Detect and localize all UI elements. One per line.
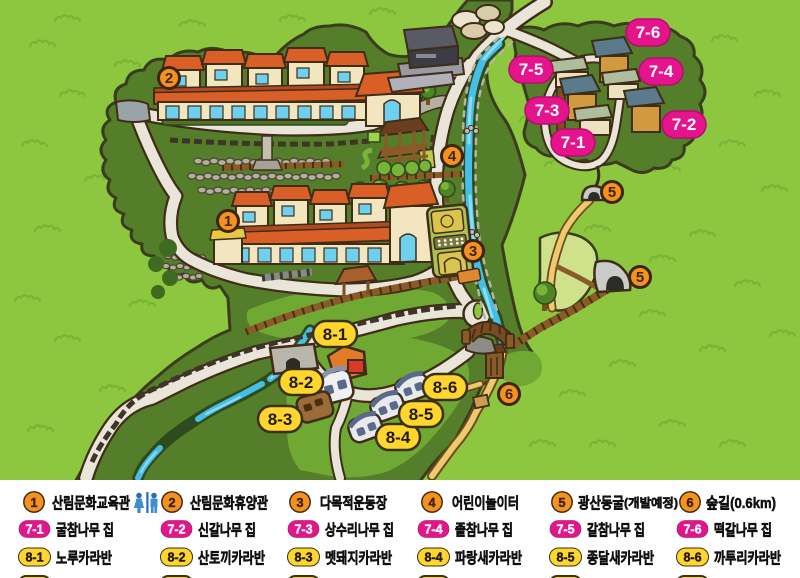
svg-text:까투리카라반: 까투리카라반 <box>714 550 781 567</box>
svg-text:어린이놀이터: 어린이놀이터 <box>452 494 519 512</box>
svg-text:상수리나무 집: 상수리나무 집 <box>325 521 394 539</box>
svg-text:7-2: 7-2 <box>672 115 697 134</box>
svg-text:4: 4 <box>448 148 457 165</box>
svg-text:7-4: 7-4 <box>649 62 674 81</box>
svg-text:산토끼카라반: 산토끼카라반 <box>198 550 265 567</box>
svg-text:파랑새카라반: 파랑새카라반 <box>455 549 522 567</box>
svg-text:숲길(0.6km): 숲길(0.6km) <box>706 495 776 512</box>
svg-text:8-4: 8-4 <box>424 551 442 565</box>
svg-text:갈참나무 집: 갈참나무 집 <box>587 521 645 539</box>
svg-text:산림문화휴양관: 산림문화휴양관 <box>190 494 268 512</box>
svg-text:7-6: 7-6 <box>683 523 701 537</box>
svg-text:8-2: 8-2 <box>167 551 185 565</box>
svg-text:8-2: 8-2 <box>289 373 314 392</box>
svg-text:8-4: 8-4 <box>386 428 411 447</box>
svg-text:8-5: 8-5 <box>556 551 574 565</box>
svg-text:8-1: 8-1 <box>323 325 348 344</box>
svg-text:5: 5 <box>636 269 644 286</box>
svg-text:광산동굴: 광산동굴 <box>578 494 624 512</box>
svg-text:3: 3 <box>469 243 477 260</box>
svg-text:5: 5 <box>608 184 616 201</box>
svg-text:멧돼지카라반: 멧돼지카라반 <box>325 550 392 567</box>
svg-text:2: 2 <box>165 70 173 87</box>
svg-text:(개발예정): (개발예정) <box>624 495 678 510</box>
svg-text:7-1: 7-1 <box>25 523 43 537</box>
svg-text:7-2: 7-2 <box>167 523 185 537</box>
svg-text:종달새카라반: 종달새카라반 <box>587 549 654 567</box>
svg-text:1: 1 <box>30 495 37 510</box>
svg-text:8-1: 8-1 <box>25 551 43 565</box>
svg-text:떡갈나무 집: 떡갈나무 집 <box>714 521 772 539</box>
svg-text:1: 1 <box>224 213 232 230</box>
svg-text:6: 6 <box>686 495 693 510</box>
svg-text:7-3: 7-3 <box>294 523 312 537</box>
svg-text:7-5: 7-5 <box>556 523 574 537</box>
svg-text:8-6: 8-6 <box>433 378 458 397</box>
svg-text:5: 5 <box>558 495 565 510</box>
svg-text:2: 2 <box>168 495 175 510</box>
svg-text:3: 3 <box>296 495 303 510</box>
svg-text:산림문화교육관: 산림문화교육관 <box>52 494 130 512</box>
svg-text:4: 4 <box>428 495 436 510</box>
svg-text:굴참나무 집: 굴참나무 집 <box>56 521 114 539</box>
svg-text:8-3: 8-3 <box>294 551 312 565</box>
svg-text:7-4: 7-4 <box>424 523 442 537</box>
svg-text:8-6: 8-6 <box>683 551 701 565</box>
svg-text:7-6: 7-6 <box>636 23 661 42</box>
svg-text:7-1: 7-1 <box>561 133 586 152</box>
svg-text:신갈나무 집: 신갈나무 집 <box>198 521 256 539</box>
svg-text:8-3: 8-3 <box>268 410 293 429</box>
svg-text:8-5: 8-5 <box>409 405 434 424</box>
svg-text:6: 6 <box>505 386 513 403</box>
svg-text:노루카라반: 노루카라반 <box>56 550 112 567</box>
svg-text:7-3: 7-3 <box>535 101 560 120</box>
svg-text:졸참나무 집: 졸참나무 집 <box>455 521 513 539</box>
svg-text:7-5: 7-5 <box>519 60 544 79</box>
svg-text:다목적운동장: 다목적운동장 <box>320 494 387 512</box>
